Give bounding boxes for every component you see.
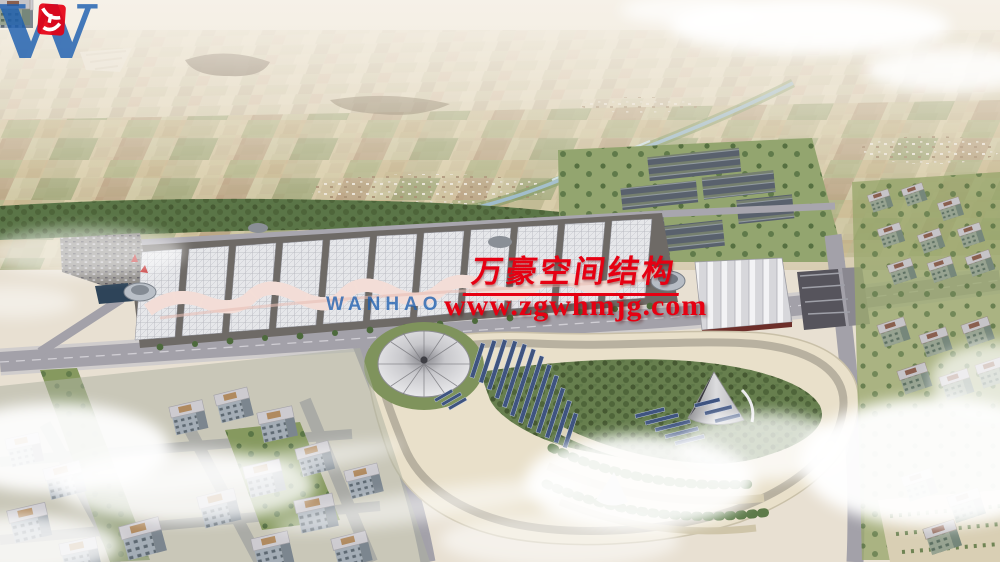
round-pavilion-east-dome — [658, 274, 678, 285]
round-pavilion-west-dome — [131, 285, 149, 295]
fog-left-mid-2 — [0, 286, 75, 318]
hall — [182, 246, 229, 336]
dome-apex — [420, 356, 427, 363]
scene-canvas — [0, 0, 1000, 562]
pleated-hall-roof — [695, 258, 792, 330]
hall — [370, 234, 417, 320]
aerial-rendering: W WANHAO 万豪空间结构 www.zgwhmjg.com — [0, 0, 1000, 562]
north-dome-2 — [488, 236, 512, 248]
north-dome-1 — [248, 223, 268, 233]
